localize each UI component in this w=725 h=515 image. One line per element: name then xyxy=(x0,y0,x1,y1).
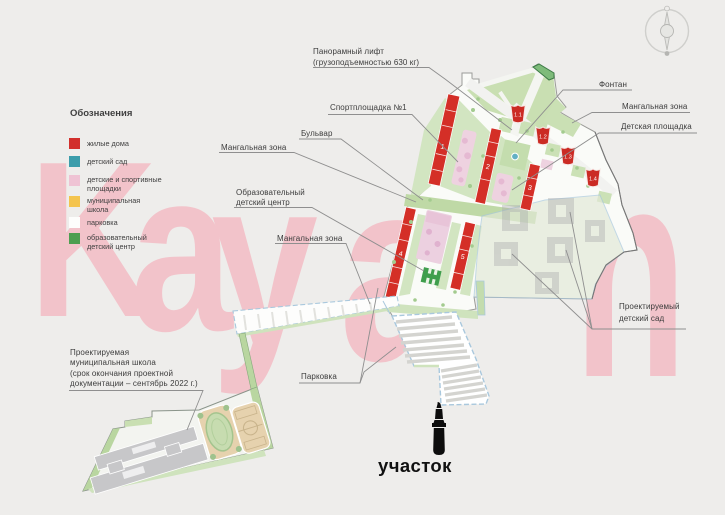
svg-text:Детская площадка: Детская площадка xyxy=(621,122,692,131)
svg-text:Мангальная зона: Мангальная зона xyxy=(221,143,287,152)
svg-text:(грузоподъемностью 630 кг): (грузоподъемностью 630 кг) xyxy=(313,58,419,67)
svg-text:Парковка: Парковка xyxy=(301,372,337,381)
svg-text:Бульвар: Бульвар xyxy=(301,129,333,138)
svg-text:документации – сентябрь 2022 г: документации – сентябрь 2022 г.) xyxy=(70,379,198,388)
svg-text:жилые дома: жилые дома xyxy=(87,139,130,148)
svg-text:детский сад: детский сад xyxy=(619,314,665,323)
svg-text:Образовательный: Образовательный xyxy=(236,188,305,197)
svg-text:Проектируемый: Проектируемый xyxy=(619,302,680,311)
svg-text:парковка: парковка xyxy=(87,218,119,227)
svg-text:Мангальная зона: Мангальная зона xyxy=(622,102,688,111)
svg-text:1.1: 1.1 xyxy=(514,113,522,119)
svg-text:1.2: 1.2 xyxy=(539,135,547,141)
svg-text:площадки: площадки xyxy=(87,184,121,193)
svg-text:Фонтан: Фонтан xyxy=(599,80,627,89)
svg-text:(срок окончания проектной: (срок окончания проектной xyxy=(70,369,173,378)
svg-text:образовательный: образовательный xyxy=(87,233,147,242)
svg-text:школа: школа xyxy=(87,205,109,214)
svg-text:Обозначения: Обозначения xyxy=(70,108,132,119)
svg-text:детский центр: детский центр xyxy=(236,198,290,207)
svg-text:1.4: 1.4 xyxy=(589,177,597,183)
svg-text:y: y xyxy=(211,128,318,396)
svg-text:детские и спортивные: детские и спортивные xyxy=(87,175,162,184)
svg-text:Мангальная зона: Мангальная зона xyxy=(277,234,343,243)
svg-text:Панорамный лифт: Панорамный лифт xyxy=(313,47,384,56)
svg-text:детский сад: детский сад xyxy=(87,157,128,166)
svg-text:муниципальная: муниципальная xyxy=(87,196,140,205)
svg-text:муниципальная школа: муниципальная школа xyxy=(70,358,156,367)
svg-text:участок: участок xyxy=(378,455,452,476)
svg-text:Проектируемая: Проектируемая xyxy=(70,348,129,357)
svg-text:детский центр: детский центр xyxy=(87,242,135,251)
svg-text:Спортплощадка №1: Спортплощадка №1 xyxy=(330,103,407,112)
